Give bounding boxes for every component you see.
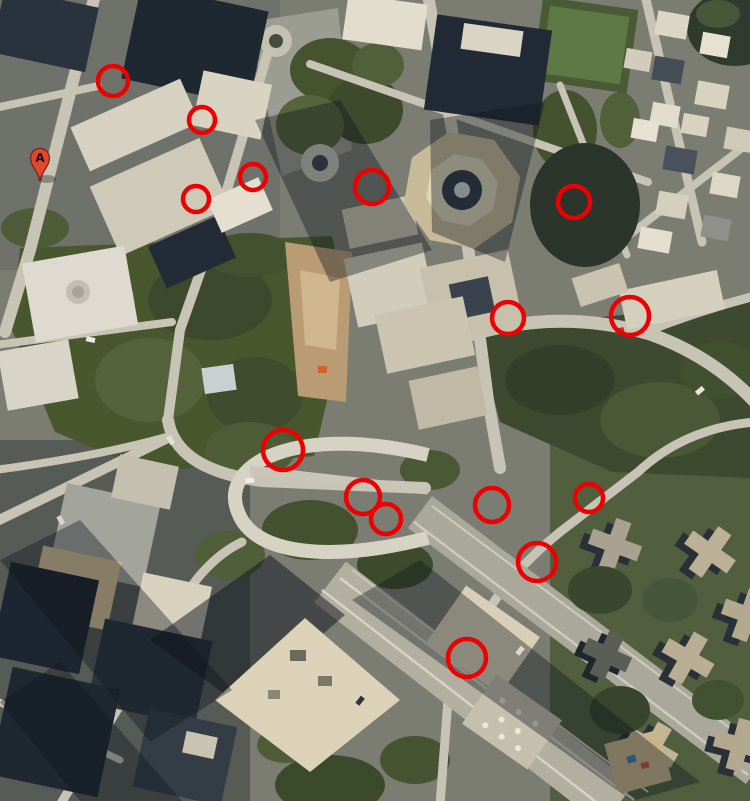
- satellite-map[interactable]: A: [0, 0, 750, 801]
- shadow-trees-right-of-octagon: [530, 143, 640, 267]
- marker-label: A: [35, 151, 45, 165]
- satellite-imagery: [0, 0, 750, 801]
